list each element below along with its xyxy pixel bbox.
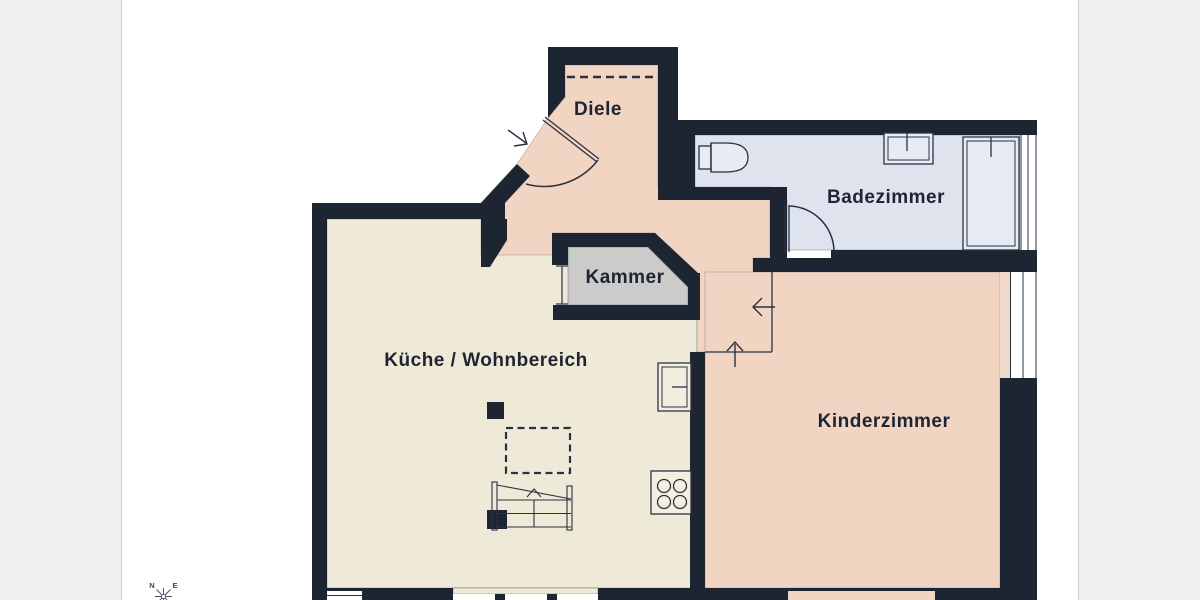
wall-segment xyxy=(658,65,678,120)
wall-segment xyxy=(788,588,935,591)
room-label-kinderzimmer: Kinderzimmer xyxy=(818,411,951,432)
bathroom-window xyxy=(1020,135,1037,250)
wall-segment xyxy=(552,233,568,265)
wall-segment xyxy=(831,250,1037,258)
room-label-kueche-wohnbereich: Küche / Wohnbereich xyxy=(384,350,587,371)
wall-segment xyxy=(548,47,678,65)
bathroom-sink-fixture xyxy=(884,133,933,164)
kitchen-sink-fixture xyxy=(658,363,691,411)
column-pillar xyxy=(487,402,504,419)
wall-segment xyxy=(753,258,1037,272)
wall-segment xyxy=(362,588,453,600)
kitchen-window-band xyxy=(453,588,598,600)
wall-segment xyxy=(1000,378,1037,600)
floor-plan-page: Diele Badezimmer Kammer Küche / Wohnbere… xyxy=(0,0,1200,600)
wall-segment xyxy=(658,120,1037,135)
wall-segment xyxy=(935,588,1037,600)
kitchen-window-small xyxy=(327,591,362,600)
kinderzimmer-window-sill xyxy=(1000,272,1010,378)
wall-segment xyxy=(598,588,705,600)
wall-segment xyxy=(690,352,705,600)
kinderzimmer-window xyxy=(1010,272,1037,378)
wall-segment xyxy=(553,305,700,320)
compass-east-label: E xyxy=(172,581,177,590)
kinderzimmer-bottom-window xyxy=(788,591,935,600)
page-margin-left xyxy=(0,0,121,600)
stove-fixture xyxy=(651,471,691,514)
room-label-badezimmer: Badezimmer xyxy=(827,187,945,208)
wall-segment xyxy=(705,588,788,600)
room-label-kammer: Kammer xyxy=(585,267,664,288)
wall-segment xyxy=(327,588,362,591)
wall-segment xyxy=(312,203,505,219)
room-label-diele: Diele xyxy=(574,99,622,120)
shower-fixture xyxy=(963,137,1019,250)
wall-segment xyxy=(312,203,327,600)
page-margin-right xyxy=(1079,0,1200,600)
toilet-fixture xyxy=(699,143,748,172)
compass-north-label: N xyxy=(149,581,154,590)
